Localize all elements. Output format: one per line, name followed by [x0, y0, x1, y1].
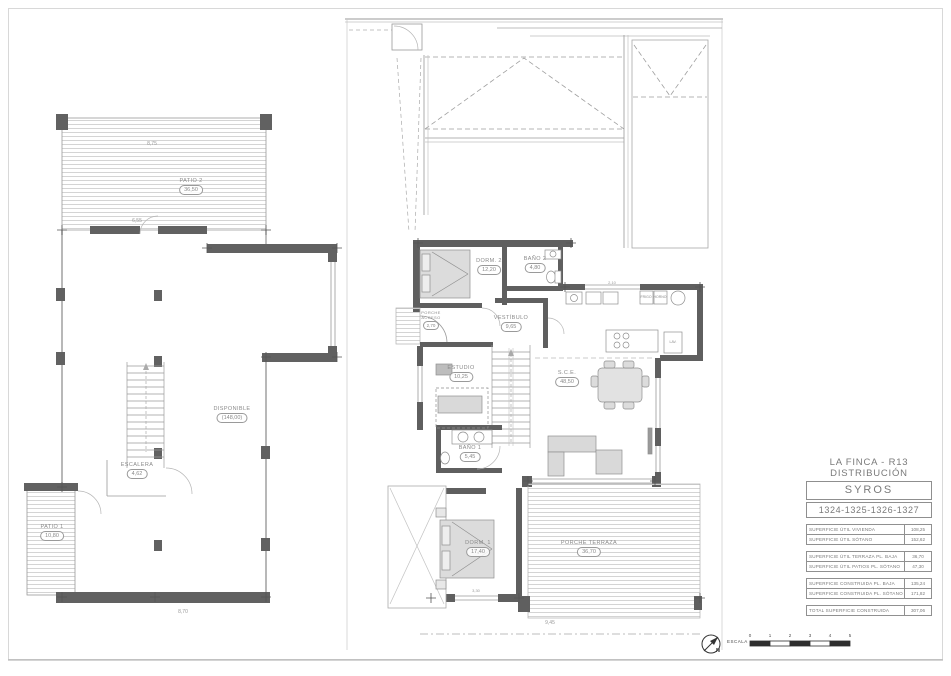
room-name: PORCHE ACCESO [417, 311, 445, 320]
scale-tick-3: 3 [809, 633, 812, 638]
oven-label: HORNO [653, 295, 666, 299]
area-label: SUPERFICIE CONSTRUIDA PL. SÓTANO [807, 589, 904, 598]
room-name: BAÑO 1 [459, 445, 482, 451]
room-area-badge: 2,70 [423, 321, 440, 330]
table-row: SUPERFICIE ÚTIL SÓTANO 152,62 [806, 534, 932, 545]
north-arrow-label: N [716, 648, 720, 654]
room-label-porche-terraza: PORCHE TERRAZA 36,70 [561, 540, 617, 557]
room-area-badge: 17,40 [466, 547, 490, 557]
table-row: SUPERFICIE CONSTRUIDA PL. SÓTANO 171,82 [806, 588, 932, 599]
table-row: SUPERFICIE ÚTIL VIVIENDA 108,25 [806, 524, 932, 535]
area-value: 152,62 [904, 535, 931, 544]
room-name: DORM. 2 [476, 258, 502, 264]
area-label: TOTAL SUPERFICIE CONSTRUIDA [807, 606, 904, 615]
washer-label: LAV. [669, 340, 676, 344]
room-name: DORM. 1 [465, 540, 491, 546]
room-name: PORCHE TERRAZA [561, 540, 617, 546]
room-area-badge: 10,80 [40, 531, 64, 541]
room-area-badge: 9,65 [501, 322, 522, 332]
room-area-badge: 48,50 [555, 377, 579, 387]
plot-numbers-box: 1324-1325-1326-1327 [806, 502, 932, 518]
area-value: 307,06 [904, 606, 931, 615]
project-title-line2: DISTRIBUCIÓN [806, 468, 932, 479]
scale-tick-2: 2 [789, 633, 792, 638]
room-area-badge: 10,25 [449, 372, 473, 382]
room-name: PATIO 1 [40, 524, 63, 530]
area-value: 36,70 [904, 552, 931, 561]
table-row: SUPERFICIE CONSTRUIDA PL. BAJA 135,24 [806, 578, 932, 589]
area-table-group-util: SUPERFICIE ÚTIL VIVIENDA 108,25 SUPERFIC… [806, 524, 932, 545]
room-label-bano1: BAÑO 1 5,45 [459, 445, 482, 462]
area-value: 171,82 [904, 589, 931, 598]
roof-plan-lines [392, 24, 708, 248]
room-label-disponible: DISPONIBLE (148,00) [213, 406, 250, 423]
room-name: ESTUDIO [447, 365, 474, 371]
room-name: DISPONIBLE [213, 406, 250, 412]
room-area-badge: (148,00) [217, 413, 248, 423]
table-row: SUPERFICIE ÚTIL PATIOS PL. SÓTANO 47,30 [806, 561, 932, 572]
scale-tick-0: 0 [749, 633, 752, 638]
area-value: 108,25 [904, 525, 931, 534]
room-area-badge: 5,45 [460, 452, 481, 462]
title-block: LA FINCA - R13 DISTRIBUCIÓN SYROS 1324-1… [806, 457, 932, 616]
area-label: SUPERFICIE ÚTIL PATIOS PL. SÓTANO [807, 562, 904, 571]
room-label-patio1: PATIO 1 10,80 [40, 524, 64, 541]
dim-basement-inner: 6,55 [132, 218, 142, 224]
scale-tick-4: 4 [829, 633, 832, 638]
area-value: 47,30 [904, 562, 931, 571]
escala-label: ESCALA [727, 639, 748, 644]
ground-plan-drawing [345, 19, 723, 650]
model-name-box: SYROS [806, 481, 932, 500]
room-label-escalera: ESCALERA 4,62 [121, 462, 154, 479]
room-area-badge: 12,20 [477, 265, 501, 275]
room-label-bano2: BAÑO 2 4,80 [524, 256, 547, 273]
area-label: SUPERFICIE ÚTIL TERRAZA PL. BAJA [807, 552, 904, 561]
room-label-dorm1: DORM. 1 17,40 [465, 540, 491, 557]
room-label-acceso: PORCHE ACCESO 2,70 [417, 311, 445, 330]
area-table-group-construida: SUPERFICIE CONSTRUIDA PL. BAJA 135,24 SU… [806, 578, 932, 599]
drawing-sheet: { "title_block": { "project_line1": "LA … [0, 0, 951, 676]
room-label-dorm2: DORM. 2 12,20 [476, 258, 502, 275]
room-label-vestibulo: VESTÍBULO 9,65 [494, 315, 528, 332]
area-value: 135,24 [904, 579, 931, 588]
room-label-sce: S.C.E. 48,50 [555, 370, 579, 387]
room-name: VESTÍBULO [494, 315, 528, 321]
area-table-group-total: TOTAL SUPERFICIE CONSTRUIDA 307,06 [806, 605, 932, 616]
dim-terrace-width: 9,45 [545, 620, 555, 626]
scale-bar-graphic [8, 635, 943, 660]
dim-basement-top: 8,75 [147, 141, 157, 147]
room-name: S.C.E. [558, 370, 576, 376]
area-label: SUPERFICIE ÚTIL VIVIENDA [807, 525, 904, 534]
fridge-label: FRIGO [640, 295, 651, 299]
project-title-line1: LA FINCA - R13 [806, 457, 932, 468]
room-area-badge: 4,62 [127, 469, 148, 479]
room-name: PATIO 2 [179, 178, 202, 184]
room-name: ESCALERA [121, 462, 154, 468]
area-table-group-exterior: SUPERFICIE ÚTIL TERRAZA PL. BAJA 36,70 S… [806, 551, 932, 572]
room-label-estudio: ESTUDIO 10,25 [447, 365, 474, 382]
scale-tick-5: 5 [849, 633, 852, 638]
area-label: SUPERFICIE CONSTRUIDA PL. BAJA [807, 579, 904, 588]
scale-tick-1: 1 [769, 633, 772, 638]
dim-basement-bottom: 8,70 [178, 609, 188, 615]
room-name: BAÑO 2 [524, 256, 547, 262]
room-area-badge: 36,70 [577, 547, 601, 557]
room-area-badge: 4,80 [525, 263, 546, 273]
room-area-badge: 36,50 [179, 185, 203, 195]
area-label: SUPERFICIE ÚTIL SÓTANO [807, 535, 904, 544]
table-row: TOTAL SUPERFICIE CONSTRUIDA 307,06 [806, 605, 932, 616]
dim-dorm1-window: 3,30 [472, 588, 480, 593]
dim-kitchen-counter: 2,10 [608, 280, 616, 285]
room-label-patio2: PATIO 2 36,50 [179, 178, 203, 195]
table-row: SUPERFICIE ÚTIL TERRAZA PL. BAJA 36,70 [806, 551, 932, 562]
